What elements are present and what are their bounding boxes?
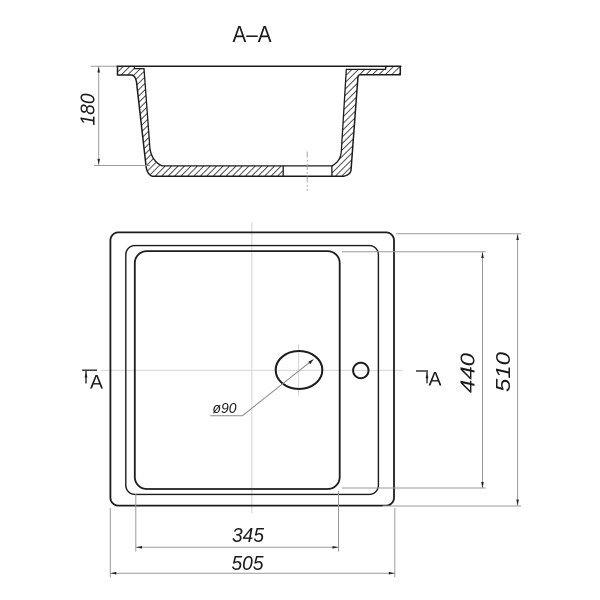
svg-text:A: A [428, 369, 441, 391]
svg-text:A: A [90, 372, 103, 394]
svg-text:ø90: ø90 [213, 401, 237, 417]
svg-text:510: 510 [492, 351, 515, 392]
svg-text:180: 180 [77, 93, 100, 126]
svg-text:440: 440 [457, 352, 480, 393]
svg-text:345: 345 [232, 524, 265, 547]
svg-text:505: 505 [232, 552, 265, 575]
svg-text:A–A: A–A [233, 21, 272, 47]
